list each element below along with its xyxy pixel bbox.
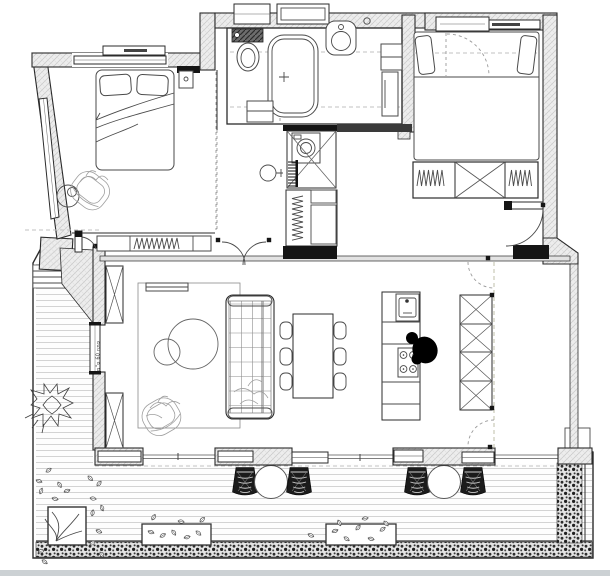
sliding-glass-wall: [95, 448, 592, 465]
utility-room: [260, 125, 337, 259]
hand-basin: [260, 165, 276, 181]
washbasin: [326, 21, 356, 55]
bedroom-2: [413, 32, 545, 246]
living-right-wall: [570, 264, 578, 448]
tall-x-cabinet: [460, 295, 492, 410]
stool-table-group-a: [233, 466, 312, 499]
partition-door-swing-top: [468, 262, 494, 288]
bedroom2-door-swing: [506, 209, 543, 246]
toilet-bowl: [237, 43, 259, 71]
dining-chair: [280, 348, 292, 365]
bedroom-1: [57, 70, 216, 251]
hanging-rod-symbol: [292, 196, 303, 240]
woven-stool: [405, 468, 430, 496]
armchair-sketch: [65, 166, 114, 215]
living-left-wall-lower: [93, 372, 105, 450]
stool-table-group-b: [405, 466, 486, 499]
washing-machine: [292, 133, 320, 163]
bathroom-window-2: [277, 4, 329, 24]
woven-stool: [461, 468, 486, 496]
bathroom: [227, 21, 412, 132]
pillow: [136, 74, 168, 96]
sofa: [226, 295, 274, 419]
dining-table: [293, 314, 333, 398]
wall-stub-hall: [513, 245, 549, 259]
window-annotation: פתח 60 ס"מ: [96, 341, 102, 371]
step-wall: [200, 13, 215, 70]
armchair: [137, 393, 186, 441]
floor-plan-canvas: פתח 60 ס"מ: [0, 0, 610, 576]
round-table: [428, 466, 461, 499]
partition-door-swing-bottom: [468, 420, 494, 446]
double-door-swing: [222, 242, 266, 265]
page-shadow-bar: [0, 570, 610, 576]
deck-bottom: [36, 464, 592, 542]
living-room: [106, 256, 494, 449]
bathtub: [268, 35, 318, 117]
right-hedge: [557, 463, 582, 543]
rug: [138, 283, 240, 428]
dining-chair: [334, 373, 346, 390]
corner-planter-tree: [45, 507, 86, 545]
floor-plan-page: פתח 60 ס"מ: [0, 0, 610, 576]
dining-chair: [280, 322, 292, 339]
woven-stool: [287, 468, 312, 496]
bathroom-bottom-wall: [337, 124, 412, 132]
pocket-door: [283, 125, 337, 131]
nightstand: [179, 71, 193, 88]
low-cabinet: [247, 101, 273, 122]
closet-wall-stub: [283, 246, 337, 259]
bottom-hedge: [36, 542, 592, 557]
coffee-table-small: [154, 339, 180, 365]
dining-chair: [334, 322, 346, 339]
dining-chair: [334, 348, 346, 365]
dining-set: [280, 314, 346, 398]
tall-bath-cabinet: [382, 72, 398, 116]
pier-4: [558, 448, 592, 464]
woven-stool: [233, 468, 258, 496]
bathroom-right-wall: [402, 15, 415, 132]
round-table: [255, 466, 288, 499]
dining-chair: [280, 373, 292, 390]
pillow: [99, 74, 131, 96]
